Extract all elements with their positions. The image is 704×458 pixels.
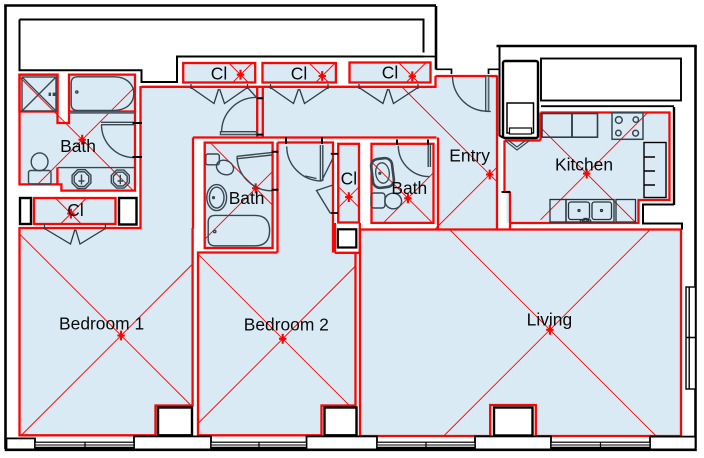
svg-text:Bath: Bath xyxy=(229,188,265,208)
svg-text:Bath: Bath xyxy=(60,136,96,156)
svg-text:Living: Living xyxy=(527,310,572,330)
svg-text:Kitchen: Kitchen xyxy=(555,155,613,175)
svg-text:Cl: Cl xyxy=(382,63,398,83)
svg-text:Cl: Cl xyxy=(341,168,357,188)
svg-text:Bath: Bath xyxy=(391,178,427,198)
svg-text:Entry: Entry xyxy=(449,145,490,165)
svg-text:Bedroom 2: Bedroom 2 xyxy=(244,315,329,335)
svg-text:Cl: Cl xyxy=(291,64,307,84)
svg-text:Bedroom 1: Bedroom 1 xyxy=(59,314,144,334)
svg-text:Cl: Cl xyxy=(67,200,83,220)
svg-text:Cl: Cl xyxy=(211,64,227,84)
